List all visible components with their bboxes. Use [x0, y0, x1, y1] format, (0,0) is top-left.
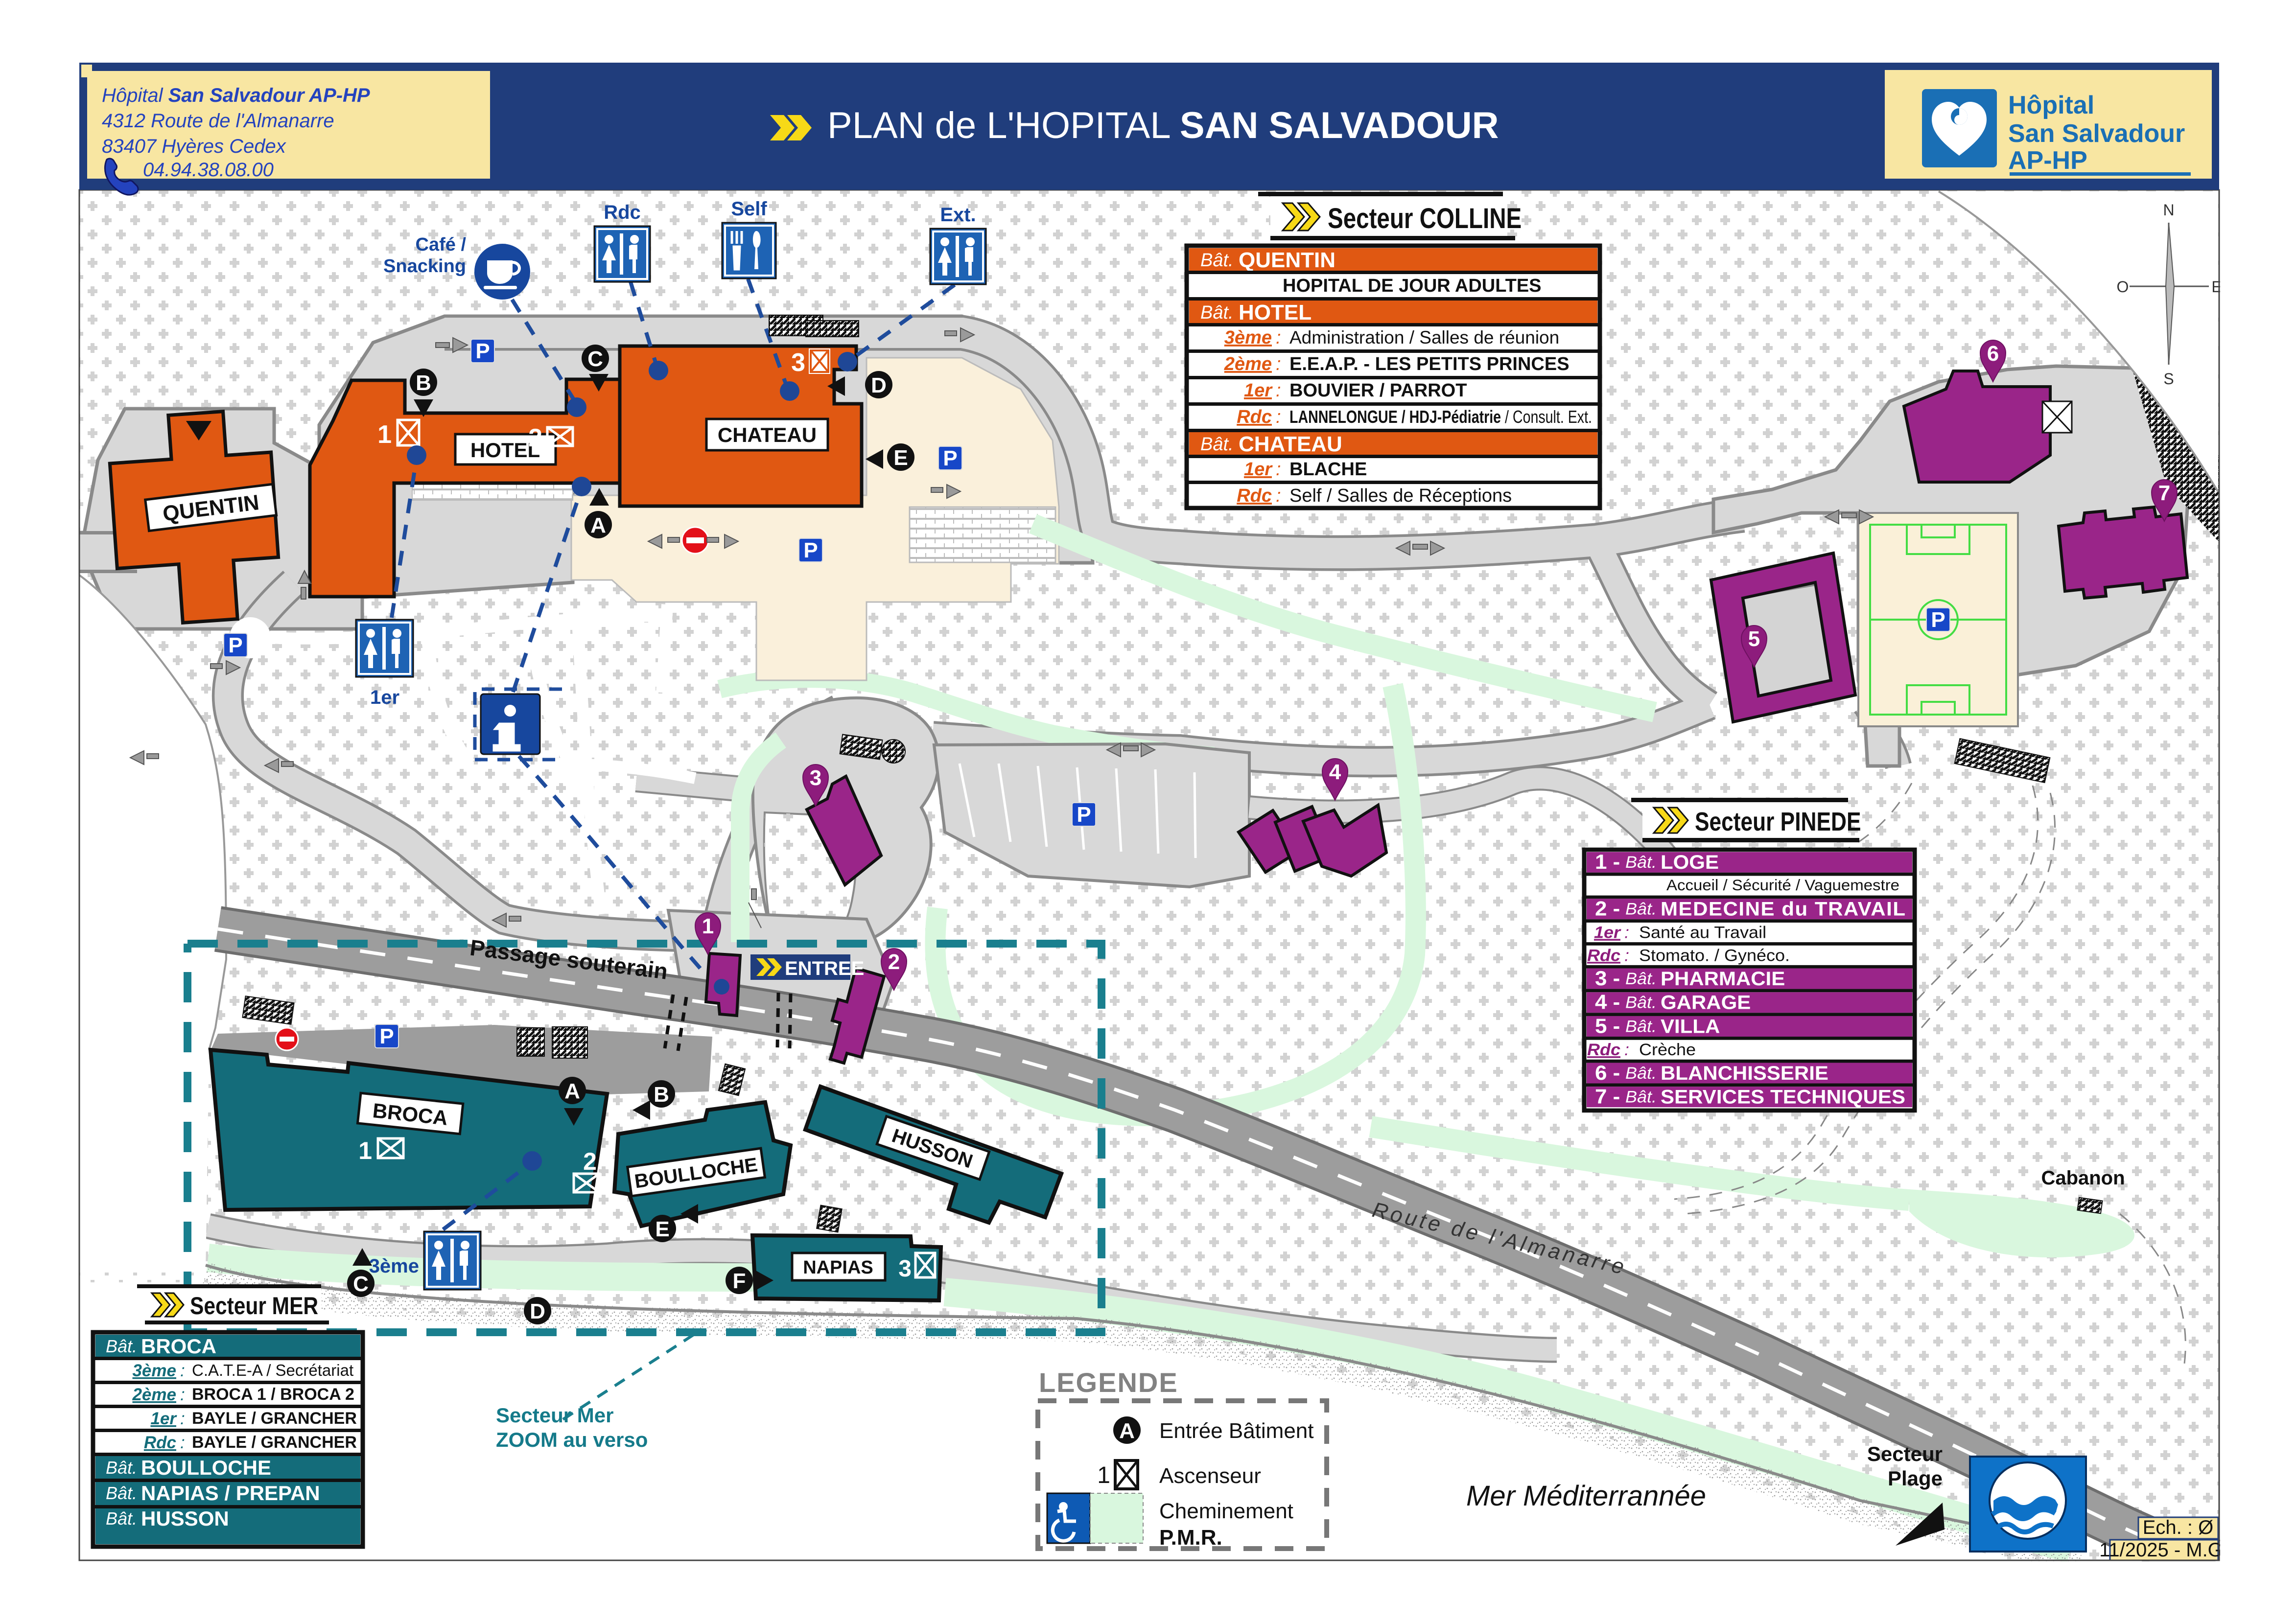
- svg-text:Secteur PINEDE: Secteur PINEDE: [1695, 807, 1861, 836]
- svg-text:B: B: [416, 371, 431, 395]
- svg-text:Accueil / Sécurité / Vaguemest: Accueil / Sécurité / Vaguemestre: [1666, 877, 1899, 894]
- svg-text:Secteur COLLINE: Secteur COLLINE: [1328, 203, 1522, 235]
- svg-text:C: C: [353, 1272, 369, 1296]
- svg-text:San Salvadour: San Salvadour: [2008, 119, 2185, 148]
- svg-text:P: P: [1077, 803, 1091, 827]
- svg-text:AP-HP: AP-HP: [2008, 146, 2087, 175]
- svg-text:4: 4: [1329, 760, 1341, 784]
- svg-text:Cheminement: Cheminement: [1159, 1499, 1293, 1523]
- svg-text:Ech. : Ø: Ech. : Ø: [2143, 1517, 2214, 1538]
- svg-text:Rdc: Rdc: [604, 202, 641, 223]
- svg-text:P: P: [228, 633, 242, 657]
- svg-text:PLAN de L'HOPITAL SAN SALVADOU: PLAN de L'HOPITAL SAN SALVADOUR: [827, 105, 1499, 146]
- svg-text:Bât.: Bât.: [1200, 302, 1234, 323]
- svg-text:A: A: [564, 1079, 580, 1103]
- svg-text:Bât.: Bât.: [1625, 1064, 1657, 1083]
- svg-text:HOTEL: HOTEL: [1239, 301, 1312, 324]
- svg-text:BLANCHISSERIE: BLANCHISSERIE: [1661, 1062, 1828, 1084]
- svg-text::: :: [1624, 923, 1629, 942]
- svg-text:Crèche: Crèche: [1639, 1041, 1696, 1059]
- svg-text:BAYLE / GRANCHER: BAYLE / GRANCHER: [192, 1409, 357, 1428]
- svg-text:A: A: [590, 513, 606, 537]
- svg-text:S: S: [2163, 370, 2174, 388]
- svg-text:6 -: 6 -: [1595, 1062, 1620, 1085]
- svg-text:Rdc: Rdc: [1237, 407, 1272, 427]
- svg-text:3ème: 3ème: [132, 1361, 176, 1380]
- svg-text:6: 6: [1987, 342, 1999, 366]
- svg-text:3 -: 3 -: [1595, 967, 1620, 990]
- svg-text:Rdc: Rdc: [1587, 1041, 1620, 1059]
- svg-text:GARAGE: GARAGE: [1661, 991, 1751, 1013]
- svg-text:QUENTIN: QUENTIN: [1239, 248, 1335, 272]
- svg-text:Bât.: Bât.: [1625, 1088, 1657, 1106]
- svg-text:B: B: [654, 1083, 669, 1107]
- svg-text:Bât.: Bât.: [1625, 900, 1657, 918]
- svg-text:Bât.: Bât.: [106, 1336, 137, 1356]
- svg-text:Café /: Café /: [416, 234, 467, 255]
- svg-text:NAPIAS: NAPIAS: [803, 1257, 873, 1278]
- svg-text:BROCA 1 / BROCA 2: BROCA 1 / BROCA 2: [192, 1385, 354, 1404]
- svg-text:BLACHE: BLACHE: [1289, 459, 1367, 480]
- svg-text:Bât.: Bât.: [1625, 993, 1657, 1012]
- svg-text:Stomato. / Gynéco.: Stomato. / Gynéco.: [1639, 946, 1790, 965]
- svg-text:P: P: [475, 339, 490, 363]
- svg-text:P: P: [943, 446, 957, 470]
- svg-text:Bât.: Bât.: [106, 1483, 137, 1503]
- svg-text:Santé au Travail: Santé au Travail: [1639, 923, 1766, 942]
- svg-text:Bât.: Bât.: [106, 1458, 137, 1478]
- svg-text:SERVICES TECHNIQUES: SERVICES TECHNIQUES: [1661, 1086, 1905, 1108]
- svg-text:Ascenseur: Ascenseur: [1159, 1464, 1261, 1488]
- svg-text:Bât.: Bât.: [1625, 970, 1657, 988]
- svg-text:Secteur Mer: Secteur Mer: [496, 1404, 613, 1427]
- svg-text:E: E: [893, 446, 908, 470]
- svg-text:2: 2: [528, 424, 542, 452]
- svg-text:BOULLOCHE: BOULLOCHE: [141, 1456, 271, 1479]
- svg-text:1er: 1er: [150, 1409, 177, 1428]
- svg-text:3ème: 3ème: [369, 1255, 419, 1277]
- svg-text::: :: [180, 1361, 185, 1380]
- svg-text:Rdc: Rdc: [1237, 486, 1272, 506]
- svg-text::: :: [1276, 407, 1281, 427]
- svg-text:2 -: 2 -: [1595, 898, 1620, 921]
- svg-text:1: 1: [1097, 1462, 1110, 1488]
- svg-text:E.E.A.P. - LES PETITS PRINCES: E.E.A.P. - LES PETITS PRINCES: [1289, 354, 1570, 374]
- svg-text:Rdc: Rdc: [1587, 946, 1620, 965]
- svg-text:1er: 1er: [1244, 459, 1273, 480]
- svg-text:1er: 1er: [370, 687, 399, 708]
- svg-text::: :: [1624, 1041, 1629, 1059]
- svg-text:HUSSON: HUSSON: [141, 1507, 229, 1530]
- svg-text:D: D: [871, 373, 887, 397]
- svg-text:P: P: [803, 538, 818, 562]
- svg-text:A: A: [1119, 1419, 1135, 1443]
- svg-text:Ext.: Ext.: [940, 204, 976, 226]
- svg-text:3: 3: [898, 1256, 912, 1282]
- svg-text:Administration / Salles de réu: Administration / Salles de réunion: [1289, 327, 1559, 348]
- svg-text:5: 5: [1748, 627, 1760, 651]
- svg-text:Self / Salles de Réceptions: Self / Salles de Réceptions: [1289, 486, 1512, 506]
- svg-text::: :: [180, 1385, 185, 1404]
- svg-text:HOPITAL DE JOUR ADULTES: HOPITAL DE JOUR ADULTES: [1283, 276, 1542, 296]
- svg-text:N: N: [2163, 201, 2174, 219]
- svg-text:BROCA: BROCA: [141, 1335, 216, 1358]
- svg-text:04.94.38.08.00: 04.94.38.08.00: [143, 159, 274, 181]
- svg-text:ZOOM au verso: ZOOM au verso: [496, 1428, 648, 1451]
- svg-text:BAYLE / GRANCHER: BAYLE / GRANCHER: [192, 1433, 357, 1452]
- svg-text:F: F: [733, 1269, 746, 1293]
- svg-text:LEGENDE: LEGENDE: [1039, 1367, 1178, 1398]
- svg-text:BOUVIER / PARROT: BOUVIER / PARROT: [1289, 380, 1467, 401]
- svg-text:P: P: [1931, 608, 1945, 632]
- svg-text:1: 1: [702, 914, 714, 938]
- svg-text:4312 Route de l'Almanarre: 4312 Route de l'Almanarre: [102, 110, 334, 132]
- svg-text::: :: [1624, 946, 1629, 965]
- svg-text:2ème: 2ème: [1224, 354, 1272, 374]
- svg-text:1er: 1er: [1594, 923, 1621, 942]
- svg-text::: :: [1276, 459, 1281, 480]
- svg-text:Secteur: Secteur: [1867, 1442, 1943, 1465]
- svg-text::: :: [1276, 380, 1281, 401]
- svg-text:Rdc: Rdc: [144, 1433, 176, 1452]
- svg-text::: :: [180, 1409, 185, 1428]
- svg-text:3: 3: [791, 348, 805, 377]
- svg-text::: :: [1276, 327, 1281, 348]
- svg-text:11/2025 - M.G.: 11/2025 - M.G.: [2099, 1539, 2228, 1561]
- svg-text:83407 Hyères Cedex: 83407 Hyères Cedex: [102, 136, 287, 157]
- svg-text:7 -: 7 -: [1595, 1085, 1620, 1108]
- svg-text:Hôpital: Hôpital: [2008, 91, 2094, 119]
- svg-text:1: 1: [377, 420, 392, 449]
- svg-text:Entrée Bâtiment: Entrée Bâtiment: [1159, 1419, 1314, 1443]
- svg-text:1er: 1er: [1244, 380, 1273, 401]
- svg-text:CHATEAU: CHATEAU: [1239, 432, 1342, 456]
- svg-text:Bât.: Bât.: [1200, 250, 1234, 271]
- svg-text:CHATEAU: CHATEAU: [718, 423, 817, 446]
- svg-text:Plage: Plage: [1888, 1467, 1943, 1490]
- svg-text:3: 3: [810, 766, 821, 790]
- svg-text:PHARMACIE: PHARMACIE: [1661, 968, 1785, 990]
- svg-text:D: D: [530, 1299, 545, 1323]
- svg-text:Hôpital San Salvadour AP-HP: Hôpital San Salvadour AP-HP: [102, 85, 370, 106]
- svg-text:2ème: 2ème: [132, 1385, 176, 1404]
- svg-text:7: 7: [2158, 481, 2170, 505]
- svg-text:P: P: [379, 1024, 394, 1048]
- svg-text:Mer Méditerrannée: Mer Méditerrannée: [1466, 1480, 1706, 1512]
- svg-text::: :: [180, 1433, 185, 1452]
- svg-text:ENTREE: ENTREE: [785, 958, 864, 979]
- svg-text:2: 2: [888, 950, 900, 974]
- svg-text:E: E: [655, 1217, 669, 1241]
- svg-text:C: C: [587, 347, 603, 371]
- svg-text:3ème: 3ème: [1224, 327, 1272, 348]
- svg-text:1: 1: [358, 1137, 372, 1164]
- svg-text:MEDECINE du TRAVAIL: MEDECINE du TRAVAIL: [1661, 898, 1905, 920]
- svg-text::: :: [1276, 354, 1281, 374]
- svg-text:O: O: [2117, 278, 2129, 296]
- svg-text::: :: [1276, 486, 1281, 506]
- svg-text:P.M.R.: P.M.R.: [1159, 1526, 1222, 1550]
- svg-text:VILLA: VILLA: [1661, 1015, 1720, 1037]
- svg-text:1 -: 1 -: [1595, 851, 1620, 874]
- svg-text:5 -: 5 -: [1595, 1015, 1620, 1038]
- svg-text:C.A.T.E-A / Secrétariat: C.A.T.E-A / Secrétariat: [192, 1361, 353, 1379]
- svg-text:Bât.: Bât.: [1200, 434, 1234, 455]
- svg-text:LOGE: LOGE: [1661, 851, 1719, 873]
- svg-text:LANNELONGUE / HDJ-Pédiatrie /: LANNELONGUE / HDJ-Pédiatrie / Consult. E…: [1289, 407, 1592, 427]
- svg-text:Bât.: Bât.: [1625, 1017, 1657, 1036]
- svg-text:Bât.: Bât.: [1625, 853, 1657, 872]
- svg-text:Secteur MER: Secteur MER: [190, 1292, 318, 1320]
- svg-text:2: 2: [583, 1148, 597, 1175]
- svg-text:NAPIAS / PREPAN: NAPIAS / PREPAN: [141, 1482, 320, 1505]
- svg-text:Cabanon: Cabanon: [2041, 1167, 2125, 1189]
- svg-text:4 -: 4 -: [1595, 991, 1620, 1014]
- svg-text:Bât.: Bât.: [106, 1508, 137, 1529]
- svg-text:Self: Self: [731, 198, 767, 220]
- svg-text:Snacking: Snacking: [383, 256, 466, 277]
